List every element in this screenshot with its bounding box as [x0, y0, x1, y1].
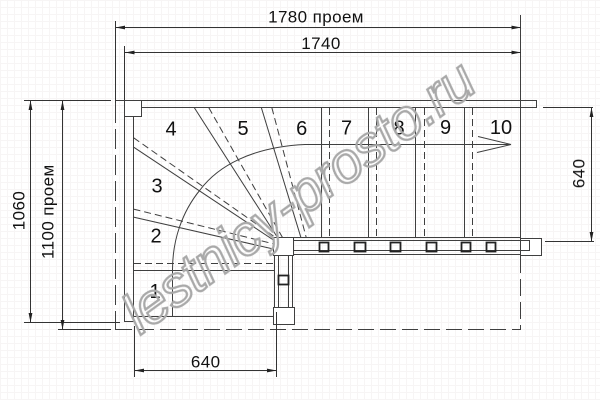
svg-text:lestnicy-prosto.ru: lestnicy-prosto.ru	[110, 48, 486, 346]
svg-text:1740: 1740	[301, 34, 340, 53]
svg-text:6: 6	[296, 118, 307, 140]
svg-text:2: 2	[150, 226, 161, 248]
svg-text:1780 проем: 1780 проем	[268, 7, 364, 26]
svg-text:10: 10	[490, 117, 512, 139]
svg-text:4: 4	[165, 119, 176, 141]
svg-text:640: 640	[569, 159, 588, 189]
svg-text:1060: 1060	[9, 191, 28, 230]
svg-text:640: 640	[191, 353, 221, 372]
svg-text:1100 проем: 1100 проем	[39, 164, 58, 259]
svg-text:5: 5	[237, 118, 248, 140]
svg-text:3: 3	[151, 176, 162, 198]
